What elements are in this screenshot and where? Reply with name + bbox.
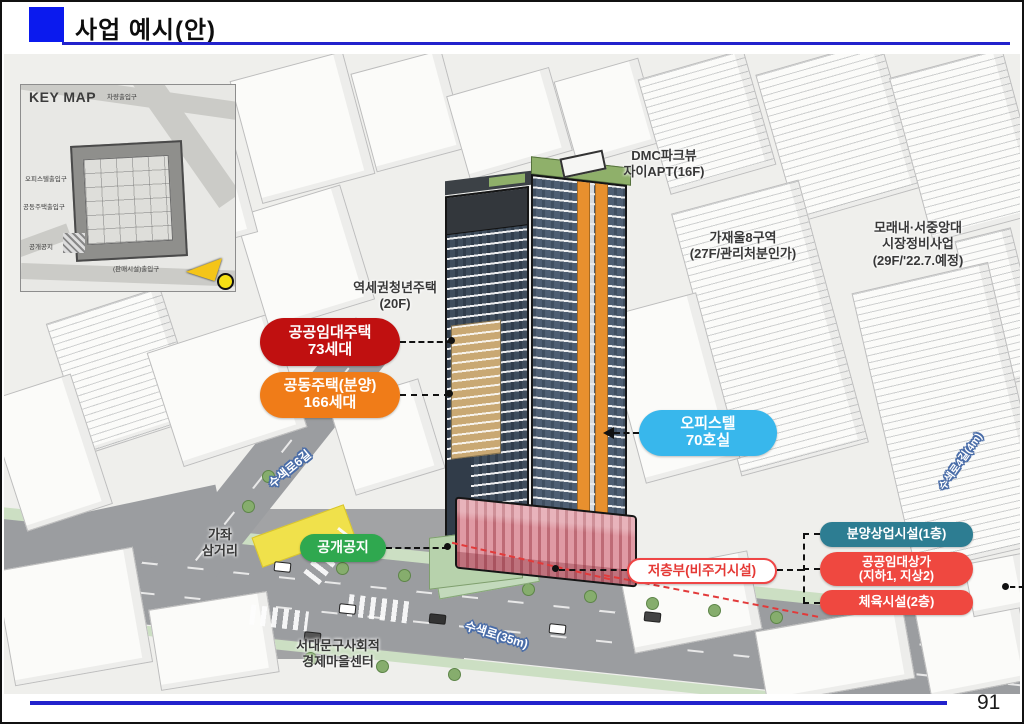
keymap-label: (판매시설)출입구 xyxy=(113,263,159,273)
callout-commercial-sale: 분양상업시설(1층) xyxy=(820,522,973,547)
keymap-hatch xyxy=(63,233,85,253)
tower-tan-section xyxy=(451,319,501,459)
label-gajaeul-district8: 가재울8구역 (27F/관리처분인가) xyxy=(662,230,824,263)
title-accent-square xyxy=(29,7,64,42)
label-station-youth-housing: 역세권청년주택 (20F) xyxy=(330,280,460,313)
tree xyxy=(448,668,461,681)
car xyxy=(339,603,357,615)
tree xyxy=(242,500,255,513)
keymap-label: 공개공지 xyxy=(29,241,53,251)
label-seodaemun-center: 서대문구사회적 경제마을센터 xyxy=(268,638,408,671)
main-tower xyxy=(439,160,639,600)
footer-rule xyxy=(30,701,947,705)
leader-line xyxy=(386,547,448,549)
tree xyxy=(646,597,659,610)
leader-line xyxy=(400,394,450,396)
callout-public-rental-housing: 공공임대주택 73세대 xyxy=(260,318,400,366)
car xyxy=(429,613,447,625)
roof-garden-patch xyxy=(489,173,525,186)
callout-open-space: 공개공지 xyxy=(300,534,386,562)
callout-apartments-for-sale: 공동주택(분양) 166세대 xyxy=(260,372,400,418)
leader-dot xyxy=(1002,583,1009,590)
keymap-building-plan xyxy=(83,155,173,245)
page-title: 사업 예시(안) xyxy=(75,10,216,45)
leader-line xyxy=(559,569,627,571)
slide: 사업 예시(안) xyxy=(0,0,1024,724)
leader-arrow xyxy=(603,427,614,439)
label-dmc-parkview: DMC파크뷰 자이APT(16F) xyxy=(599,148,729,181)
callout-sports-facility: 체육시설(2층) xyxy=(820,590,973,615)
car xyxy=(274,561,292,573)
callout-officetel: 오피스텔 70호실 xyxy=(639,410,777,456)
title-underline xyxy=(62,42,1010,45)
leader-line xyxy=(400,341,452,343)
keymap-marker-dot xyxy=(217,273,234,290)
leader-line xyxy=(777,569,803,571)
leader-line xyxy=(614,432,639,434)
key-map: KEY MAP 차량출입구 오피스텔출입구 공동주택출입구 공개공지 (판매시설… xyxy=(20,84,236,292)
callout-lower-levels: 저층부(비주거시설) xyxy=(627,558,777,584)
tower-orange-strip xyxy=(577,181,590,518)
keymap-label: 차량출입구 xyxy=(107,91,137,101)
page-number: 91 xyxy=(977,691,1000,715)
callout-public-rental-shops: 공공임대상가 (지하1, 지상2) xyxy=(820,552,973,586)
leader-dot xyxy=(446,390,453,397)
leader-line xyxy=(803,602,820,604)
leader-dot xyxy=(444,543,451,550)
leader-dot xyxy=(552,565,559,572)
leader-line xyxy=(803,533,820,535)
keymap-title: KEY MAP xyxy=(29,89,96,105)
building-block xyxy=(889,54,1020,242)
building-block xyxy=(4,547,153,687)
leader-line xyxy=(803,568,820,570)
tree xyxy=(398,569,411,582)
car xyxy=(549,623,567,635)
tower-orange-strip xyxy=(595,183,608,520)
tree xyxy=(708,604,721,617)
tree xyxy=(770,611,783,624)
car xyxy=(644,611,662,623)
keymap-site-block xyxy=(70,140,188,262)
label-moraenae-market: 모래내·서중앙대 시장정비사업 (29F/'22.7.예정) xyxy=(845,220,991,269)
leader-dot xyxy=(448,337,455,344)
tower-dark-top xyxy=(447,188,527,235)
keymap-label: 오피스텔출입구 xyxy=(25,173,67,183)
label-gajwa-intersection: 가좌 삼거리 xyxy=(185,527,255,560)
leader-line xyxy=(1010,586,1024,588)
tree xyxy=(336,562,349,575)
tower-white-strip xyxy=(590,183,594,519)
keymap-label: 공동주택출입구 xyxy=(23,201,65,211)
tower-front-face xyxy=(531,174,627,525)
